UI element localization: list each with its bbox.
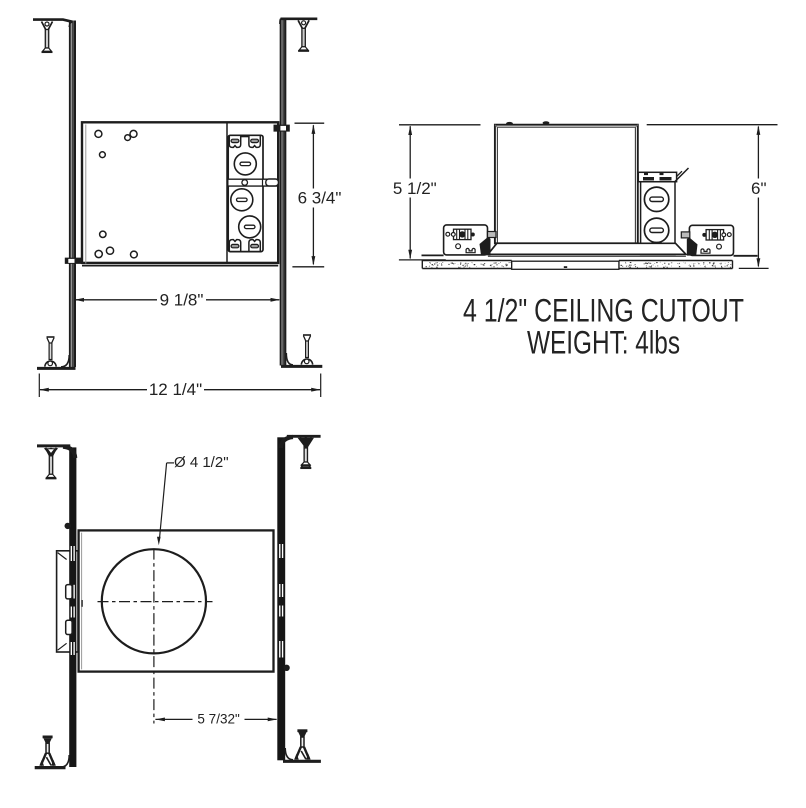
svg-text:5 7/32": 5 7/32" [197,712,240,727]
svg-text:Ø 4 1/2": Ø 4 1/2" [174,454,229,471]
svg-text:6": 6" [751,179,767,198]
svg-text:4 1/2" CEILING CUTOUT: 4 1/2" CEILING CUTOUT [463,293,744,329]
svg-text:9 1/8": 9 1/8" [160,290,204,309]
svg-text:6 3/4": 6 3/4" [298,189,342,208]
svg-text:12 1/4": 12 1/4" [149,380,202,399]
svg-text:WEIGHT: 4lbs: WEIGHT: 4lbs [527,324,680,360]
svg-text:5 1/2": 5 1/2" [393,179,437,198]
